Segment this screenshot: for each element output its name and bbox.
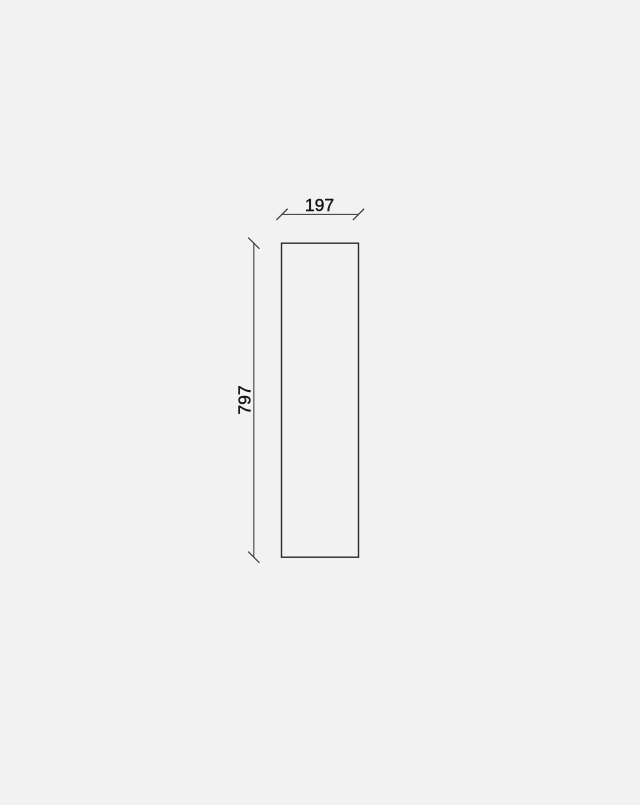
svg-text:797: 797: [235, 385, 255, 414]
svg-text:197: 197: [305, 195, 334, 215]
